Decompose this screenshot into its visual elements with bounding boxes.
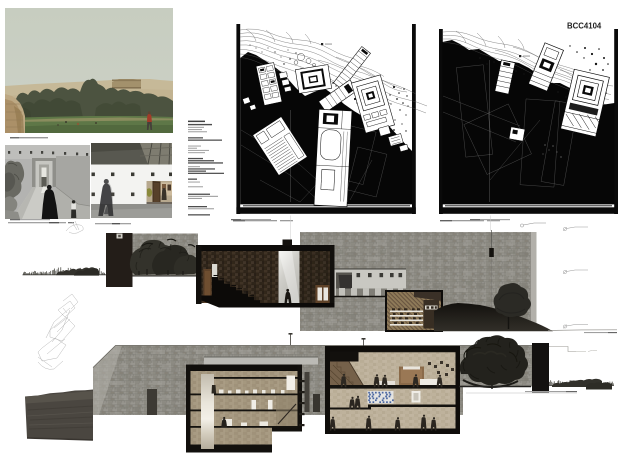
svg-text:BCC4104: BCC4104 <box>567 22 602 31</box>
